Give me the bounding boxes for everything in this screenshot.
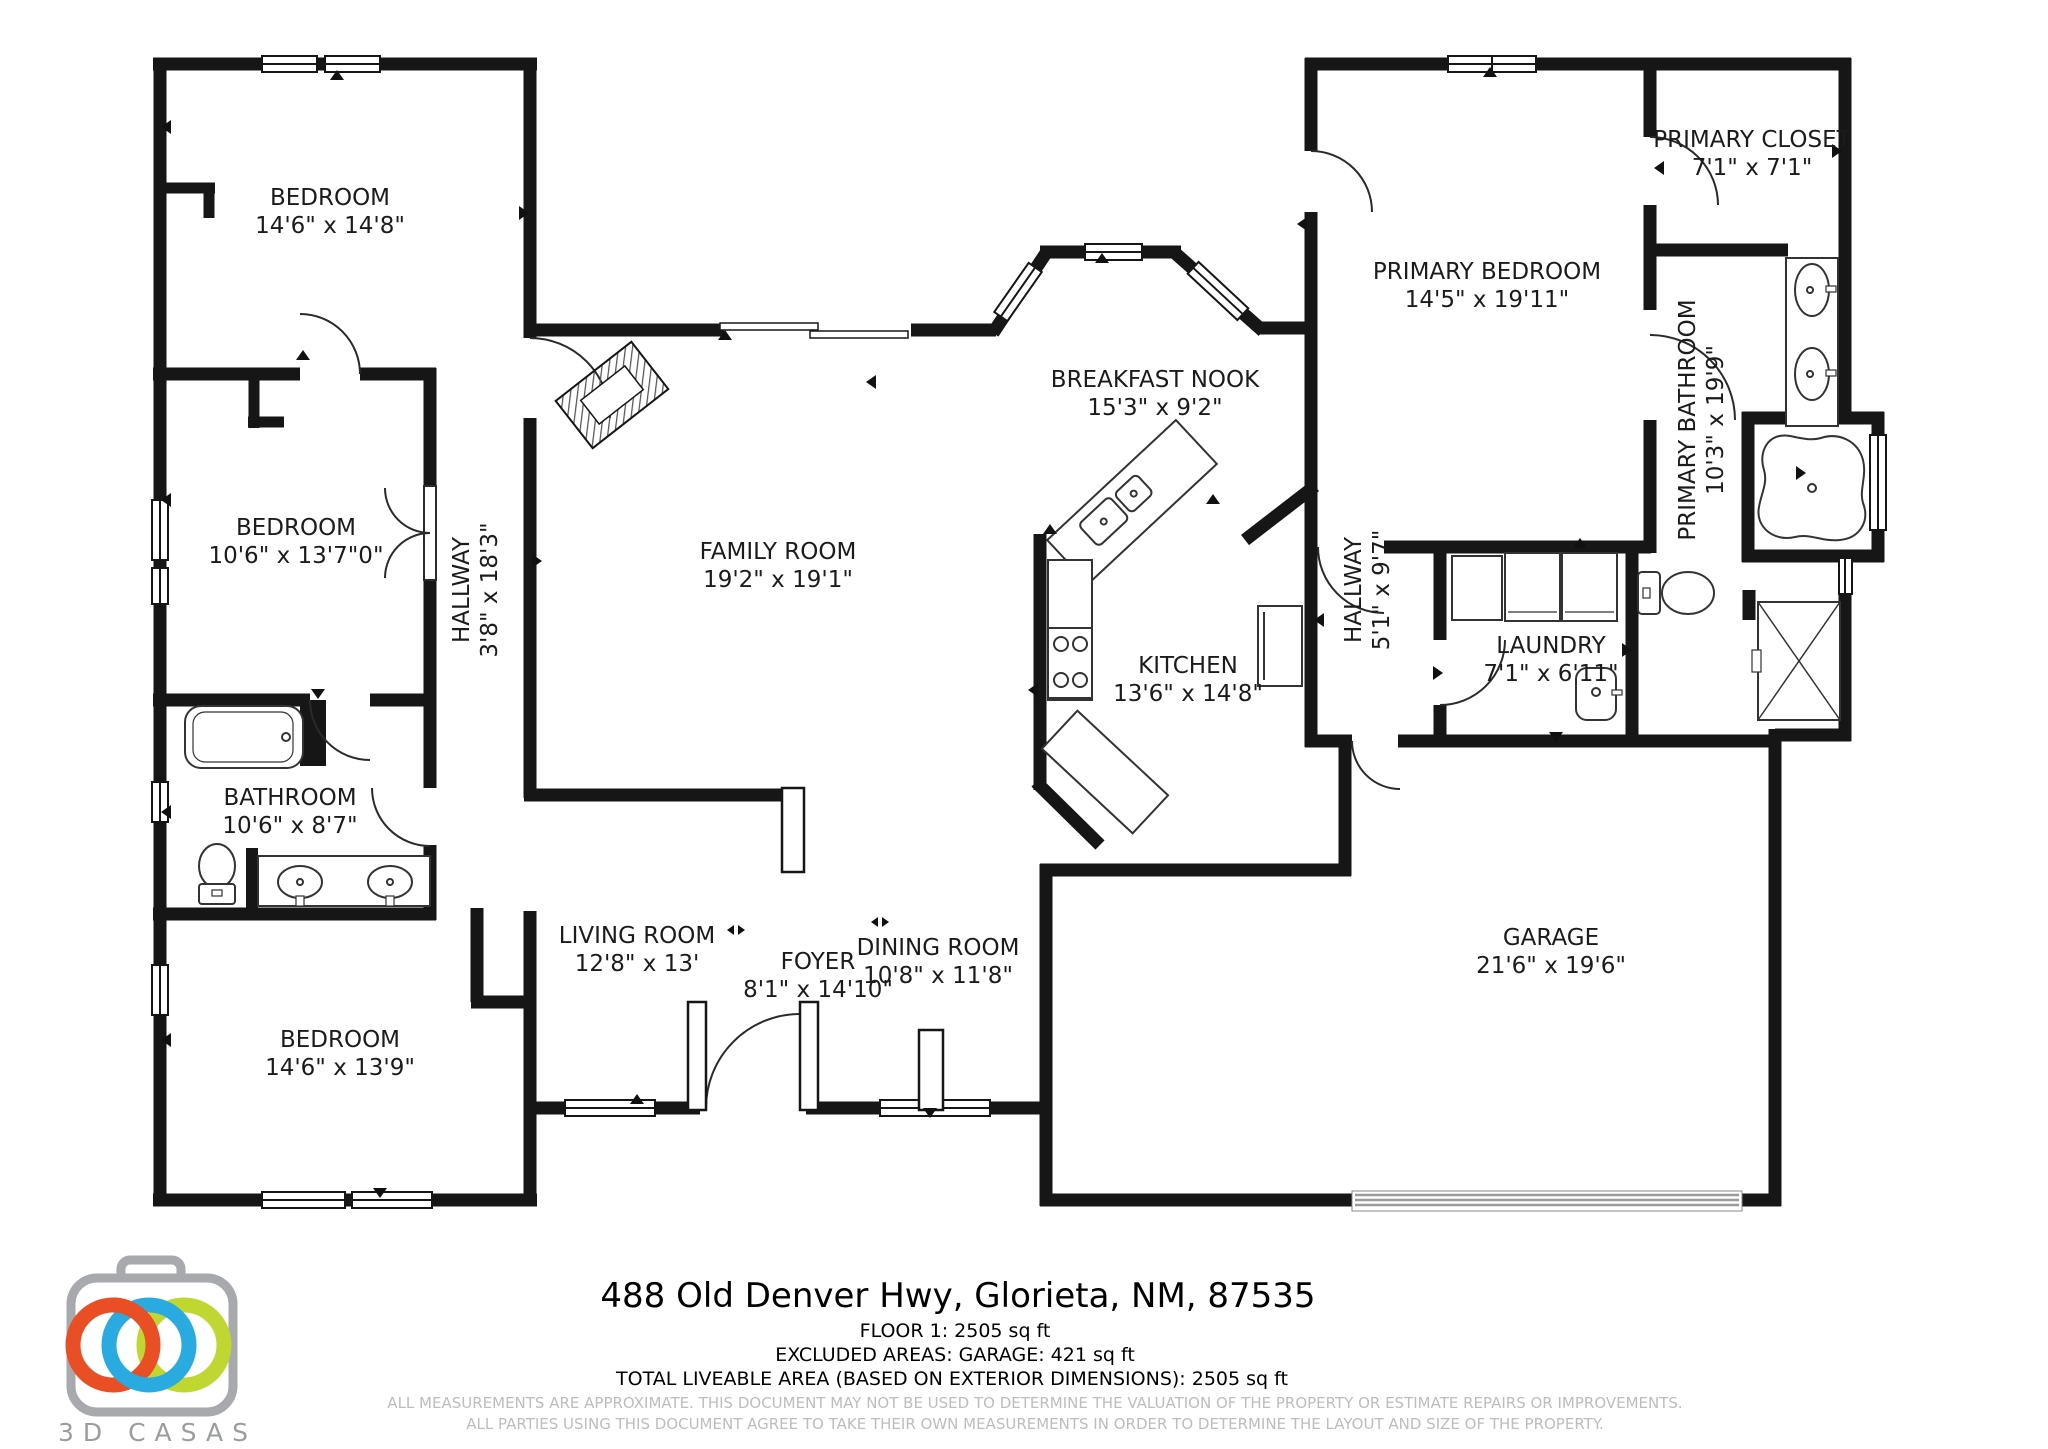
logo-brand-text: 3D CASAS bbox=[58, 1418, 258, 1447]
garage-door bbox=[1352, 1191, 1742, 1211]
room-label-primary-closet: PRIMARY CLOSET7'1" x 7'1" bbox=[1653, 126, 1850, 182]
room-name: HALLWAY bbox=[1340, 530, 1368, 651]
sliding-door bbox=[720, 323, 908, 338]
fireplace bbox=[556, 342, 669, 448]
room-dimensions: 14'6" x 13'9" bbox=[265, 1054, 415, 1082]
room-label-garage: GARAGE21'6" x 19'6" bbox=[1476, 924, 1626, 980]
company-logo bbox=[55, 1252, 265, 1427]
disclaimer-line-2: ALL PARTIES USING THIS DOCUMENT AGREE TO… bbox=[466, 1415, 1603, 1433]
room-label-primary-bedroom: PRIMARY BEDROOM14'5" x 19'11" bbox=[1373, 258, 1601, 314]
room-label-bedroom-3: BEDROOM14'6" x 13'9" bbox=[265, 1026, 415, 1082]
vanity-hall-bath bbox=[258, 856, 430, 906]
room-dimensions: 5'1" x 9'7" bbox=[1368, 530, 1396, 651]
room-dimensions: 10'6" x 13'7"0" bbox=[208, 542, 383, 570]
room-label-hallway-main: HALLWAY3'8" x 18'3" bbox=[448, 522, 504, 657]
room-name: PRIMARY BATHROOM bbox=[1674, 299, 1702, 540]
room-dimensions: 19'2" x 19'1" bbox=[700, 566, 857, 594]
room-dimensions: 10'3" x 19'9" bbox=[1702, 299, 1730, 540]
room-dimensions: 14'6" x 14'8" bbox=[255, 212, 405, 240]
excluded-area-line: EXCLUDED AREAS: GARAGE: 421 sq ft bbox=[775, 1344, 1135, 1366]
room-dimensions: 3'8" x 18'3" bbox=[476, 522, 504, 657]
room-label-bathroom: BATHROOM10'6" x 8'7" bbox=[222, 784, 357, 840]
primary-tub bbox=[1758, 435, 1865, 540]
primary-vanity bbox=[1786, 258, 1838, 426]
room-name: KITCHEN bbox=[1113, 652, 1263, 680]
room-name: FAMILY ROOM bbox=[700, 538, 857, 566]
address-title: 488 Old Denver Hwy, Glorieta, NM, 87535 bbox=[600, 1276, 1315, 1316]
washer bbox=[1505, 553, 1560, 621]
room-name: PRIMARY CLOSET bbox=[1653, 126, 1850, 154]
room-name: BATHROOM bbox=[222, 784, 357, 812]
room-dimensions: 7'1" x 7'1" bbox=[1653, 154, 1850, 182]
dryer bbox=[1562, 553, 1617, 621]
disclaimer-line-1: ALL MEASUREMENTS ARE APPROXIMATE. THIS D… bbox=[387, 1394, 1682, 1412]
room-dimensions: 10'6" x 8'7" bbox=[222, 812, 357, 840]
toilet-wc bbox=[1638, 572, 1714, 614]
room-label-living-room: LIVING ROOM12'8" x 13' bbox=[559, 922, 716, 978]
laundry-closet bbox=[1452, 556, 1502, 620]
room-label-kitchen: KITCHEN13'6" x 14'8" bbox=[1113, 652, 1263, 708]
room-dimensions: 21'6" x 19'6" bbox=[1476, 952, 1626, 980]
room-dimensions: 10'8" x 11'8" bbox=[857, 962, 1020, 990]
floor-area-line: FLOOR 1: 2505 sq ft bbox=[860, 1320, 1051, 1342]
room-label-family-room: FAMILY ROOM19'2" x 19'1" bbox=[700, 538, 857, 594]
room-dimensions: 12'8" x 13' bbox=[559, 950, 716, 978]
room-label-breakfast-nook: BREAKFAST NOOK15'3" x 9'2" bbox=[1051, 366, 1259, 422]
room-name: LIVING ROOM bbox=[559, 922, 716, 950]
room-name: BEDROOM bbox=[208, 514, 383, 542]
room-label-laundry: LAUNDRY7'1" x 6'11" bbox=[1483, 632, 1618, 688]
room-name: BEDROOM bbox=[265, 1026, 415, 1054]
bath-divider-stub bbox=[246, 848, 258, 914]
room-name: BREAKFAST NOOK bbox=[1051, 366, 1259, 394]
room-name: PRIMARY BEDROOM bbox=[1373, 258, 1601, 286]
shower bbox=[1752, 602, 1840, 720]
room-dimensions: 14'5" x 19'11" bbox=[1373, 286, 1601, 314]
room-name: BEDROOM bbox=[255, 184, 405, 212]
room-name: DINING ROOM bbox=[857, 934, 1020, 962]
stove bbox=[1048, 628, 1092, 698]
room-dimensions: 7'1" x 6'11" bbox=[1483, 660, 1618, 688]
bathtub bbox=[185, 706, 303, 768]
floorplan-page: BEDROOM14'6" x 14'8"BEDROOM10'6" x 13'7"… bbox=[0, 0, 2048, 1449]
room-dimensions: 13'6" x 14'8" bbox=[1113, 680, 1263, 708]
refrigerator bbox=[1258, 606, 1302, 686]
room-label-primary-bathroom: PRIMARY BATHROOM10'3" x 19'9" bbox=[1674, 299, 1730, 540]
total-area-line: TOTAL LIVEABLE AREA (BASED ON EXTERIOR D… bbox=[616, 1368, 1288, 1390]
room-label-hallway-rear: HALLWAY5'1" x 9'7" bbox=[1340, 530, 1396, 651]
room-name: GARAGE bbox=[1476, 924, 1626, 952]
room-label-bedroom-1: BEDROOM14'6" x 14'8" bbox=[255, 184, 405, 240]
room-label-bedroom-2: BEDROOM10'6" x 13'7"0" bbox=[208, 514, 383, 570]
room-label-dining-room: DINING ROOM10'8" x 11'8" bbox=[857, 934, 1020, 990]
room-dimensions: 15'3" x 9'2" bbox=[1051, 394, 1259, 422]
room-name: HALLWAY bbox=[448, 522, 476, 657]
toilet-hall-bath bbox=[199, 844, 235, 904]
room-name: LAUNDRY bbox=[1483, 632, 1618, 660]
